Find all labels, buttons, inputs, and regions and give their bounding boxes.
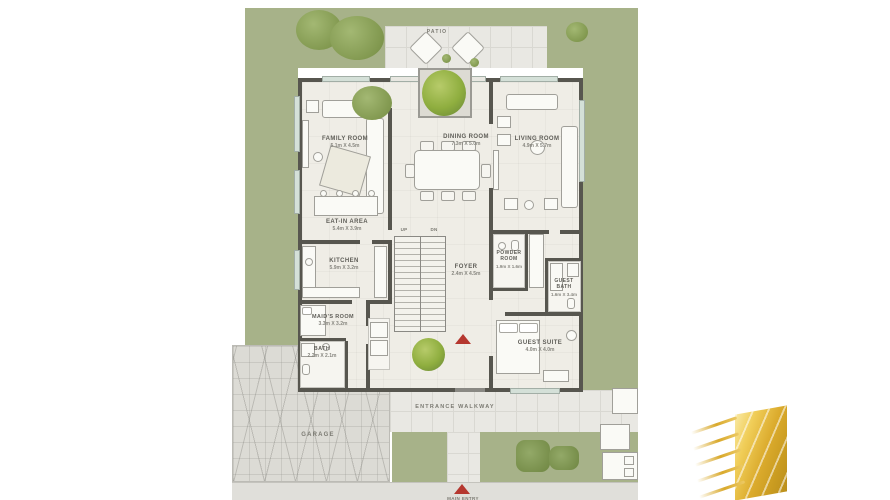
guest-bath-label: GUEST BATH 1.6m X 3.4m: [547, 278, 581, 297]
dryer: [370, 340, 388, 356]
living-room-dims: 4.9m X 5.7m: [494, 143, 580, 149]
kitchen-appliance-column: [374, 246, 387, 298]
utility-box-small-2: [624, 468, 634, 477]
powder-sink: [498, 242, 506, 250]
guest-bath-dims: 1.6m X 3.4m: [547, 292, 581, 297]
living-tv-console: [493, 150, 499, 190]
kitchen-name: KITCHEN: [302, 258, 386, 264]
wall-powder-bottom: [492, 288, 528, 291]
eatin-area-label: EAT-IN AREA 5.4m X 3.9m: [304, 219, 390, 232]
maids-toilet: [302, 364, 310, 375]
bush-top-left-2: [330, 16, 384, 60]
bush-left-1: [352, 86, 392, 120]
utility-pad-2: [600, 424, 630, 450]
main-entry-marker-icon: [454, 484, 470, 494]
dining-table: [414, 150, 480, 190]
window-living-top: [500, 76, 558, 82]
wall-bath-right: [345, 341, 348, 390]
window-guest-suite-bottom: [510, 388, 560, 394]
lawn-left: [245, 8, 298, 390]
wall-foyer-right-bottom: [489, 356, 493, 390]
floor-plan-canvas: UP DN: [0, 0, 890, 500]
living-room-name: LIVING ROOM: [494, 136, 580, 142]
main-entry-label: MAIN ENTRY: [433, 496, 493, 500]
courtyard-tree: [422, 70, 466, 116]
guest-bath-name: GUEST BATH: [547, 278, 581, 291]
living-ottoman-2: [544, 198, 558, 210]
wall-family-dining: [388, 108, 392, 230]
guest-bench: [543, 370, 569, 382]
eatin-island: [314, 196, 378, 216]
lawn-bottom-left: [392, 432, 447, 488]
hedge-bottom-2: [549, 446, 579, 470]
maids-room-label: MAID'S ROOM 3.3m X 3.2m: [300, 314, 366, 327]
stairs-dn-label: DN: [426, 227, 442, 232]
living-room-label: LIVING ROOM 4.9m X 5.7m: [494, 136, 580, 149]
washer: [370, 322, 388, 338]
walkway-label: ENTRANCE WALKWAY: [392, 404, 518, 410]
family-room-name: FAMILY ROOM: [300, 136, 390, 142]
foyer-entry-marker-icon: [455, 334, 471, 344]
guest-suite-name: GUEST SUITE: [500, 340, 580, 346]
powder-room-dims: 1.9m X 1.6m: [494, 264, 524, 269]
foyer-label: FOYER 2.4m X 4.5m: [440, 264, 492, 277]
guest-pillow-2: [519, 323, 538, 333]
patio-label: PATIO: [407, 29, 467, 35]
guest-suite-dims: 4.0m X 4.0m: [500, 347, 580, 353]
bath-name: BATH: [300, 346, 344, 352]
foyer-dims: 2.4m X 4.5m: [440, 271, 492, 277]
maids-room-name: MAID'S ROOM: [300, 314, 366, 320]
dining-chair-6: [462, 191, 476, 201]
staircase: [394, 236, 446, 332]
wall-powder-right: [525, 232, 528, 290]
eatin-stool-1: [320, 190, 327, 197]
family-room-dims: 5.1m X 4.5m: [300, 143, 390, 149]
window-eatin-left: [294, 170, 300, 214]
guest-suite-label: GUEST SUITE 4.0m X 4.0m: [500, 340, 580, 353]
logo-gold-parallelogram-icon: [735, 405, 787, 500]
entry-plant: [412, 338, 445, 371]
patio-pot-plant-2: [470, 58, 479, 67]
dining-chair-4: [420, 191, 434, 201]
wall-maids-top-a: [298, 300, 352, 304]
logo-stripe-1: [691, 416, 737, 434]
dining-chair-8: [481, 164, 491, 178]
family-side-table: [306, 100, 319, 113]
guest-bath-vanity: [567, 263, 579, 277]
kitchen-counter-bottom: [302, 287, 360, 298]
kitchen-label: KITCHEN 5.9m X 3.2m: [302, 258, 386, 271]
wall-dining-living-top: [489, 78, 493, 124]
foyer-name: FOYER: [440, 264, 492, 270]
wall-dining-living-bottom: [489, 188, 493, 232]
kitchen-dims: 5.9m X 3.2m: [302, 265, 386, 271]
wall-kitchen-right: [388, 240, 392, 302]
wall-living-bottom-b: [560, 230, 583, 234]
wall-kitchen-top-a: [298, 240, 360, 244]
tree-top-right: [566, 22, 588, 42]
logo-stripe-2: [693, 432, 739, 450]
eatin-area-name: EAT-IN AREA: [304, 219, 390, 225]
wall-guest-suite-top: [505, 312, 583, 316]
main-door: [455, 388, 485, 392]
dining-chair-7: [405, 164, 415, 178]
floor-lamp: [313, 152, 323, 162]
living-armchair-1: [497, 116, 511, 128]
stair-divider: [420, 237, 421, 331]
living-sofa-top: [506, 94, 558, 110]
eatin-stool-2: [336, 190, 343, 197]
hall-closet: [529, 234, 544, 288]
living-ottoman-1: [504, 198, 518, 210]
maids-room-dims: 3.3m X 3.2m: [300, 321, 366, 327]
living-side-table: [524, 200, 534, 210]
window-family-top: [322, 76, 370, 82]
eatin-stool-3: [352, 190, 359, 197]
utility-pad-1: [612, 388, 638, 414]
garage-label: GARAGE: [258, 432, 378, 438]
guest-bath-toilet: [567, 298, 575, 309]
utility-box-small-1: [624, 456, 634, 465]
dining-chair-5: [441, 191, 455, 201]
entry-path: [447, 432, 480, 488]
window-kitchen-left: [294, 250, 300, 290]
powder-room-label: POWDER ROOM 1.9m X 1.6m: [494, 250, 524, 269]
powder-room-name: POWDER ROOM: [494, 250, 524, 263]
eatin-stool-4: [368, 190, 375, 197]
guest-pillow-1: [499, 323, 518, 333]
hedge-bottom-1: [516, 440, 550, 472]
stairs-up-label: UP: [396, 227, 412, 232]
patio-pot-plant-1: [442, 54, 451, 63]
bath-label: BATH 2.2m X 2.1m: [300, 346, 344, 359]
family-room-label: FAMILY ROOM 5.1m X 4.5m: [300, 136, 390, 149]
bath-dims: 2.2m X 2.1m: [300, 353, 344, 359]
eatin-area-dims: 5.4m X 3.9m: [304, 226, 390, 232]
